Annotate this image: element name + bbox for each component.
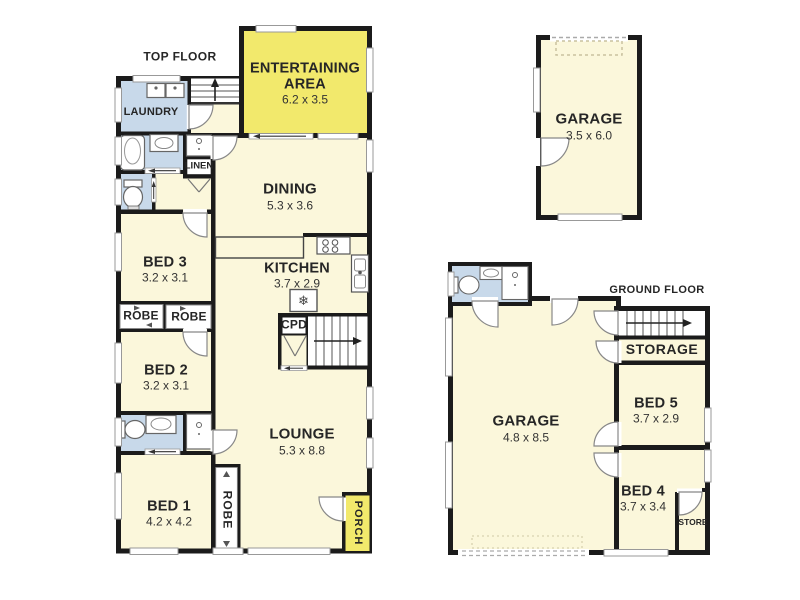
toilet-icon: [119, 421, 145, 439]
toilet-icon: [124, 180, 143, 210]
room-label-bed3: BED 3 3.2 x 3.1: [142, 255, 188, 286]
room-label-lounge: LOUNGE 5.3 x 8.8: [269, 426, 334, 457]
room-label-storage: STORAGE: [626, 342, 698, 358]
top-floor-title: TOP FLOOR: [143, 50, 216, 63]
kitchen-sink-icon: [352, 255, 369, 292]
room-label-entertaining: ENTERTAINING AREA 6.2 x 3.5: [244, 61, 366, 108]
room-label-bed4: BED 4 3.7 x 3.4: [620, 484, 666, 515]
vanity-sink-icon: [150, 135, 178, 152]
room-label-cpd: CPD: [281, 318, 307, 331]
floorplan-canvas: TOP FLOOR ENTERTAINING AREA 6.2 x 3.5 LA…: [0, 0, 800, 600]
stairs-up-icon: [191, 78, 239, 105]
room-label-bed2: BED 2 3.2 x 3.1: [143, 363, 189, 394]
room-dims: 6.2 x 3.5: [244, 94, 366, 107]
window: [534, 68, 541, 112]
fridge-snowflake-icon: ❄: [298, 293, 309, 309]
room-label-linen: LINEN: [185, 162, 214, 173]
room-label-robe-right: ROBE: [171, 310, 206, 323]
room-label-store: STORE: [678, 518, 707, 528]
room-label-dining: DINING 5.3 x 3.6: [263, 181, 317, 212]
toilet-icon: [453, 276, 480, 294]
room-label-kitchen: KITCHEN 3.7 x 2.9: [264, 261, 330, 292]
door-gap: [534, 138, 540, 166]
stairs-mid-icon: [308, 317, 368, 366]
room-label-bed5: BED 5 3.7 x 2.9: [633, 396, 679, 427]
room-label-detached-garage: GARAGE 3.5 x 6.0: [555, 111, 622, 142]
shower-icon: [502, 267, 528, 300]
shower-icon: [187, 414, 212, 449]
laundry-tubs-icon: [147, 84, 184, 98]
vanity-sink-icon: [480, 267, 502, 280]
room-label-robe-left: ROBE: [123, 309, 158, 322]
vanity-sink-icon: [146, 416, 176, 434]
window: [448, 272, 454, 296]
stairs-gf-icon: [619, 311, 705, 336]
room-name: ENTERTAINING AREA: [244, 61, 366, 93]
room-label-porch: PORCH: [352, 501, 364, 546]
window: [558, 214, 622, 221]
stove-icon: [317, 237, 350, 254]
floorplan-svg: [0, 0, 800, 600]
shower-icon: [187, 135, 212, 156]
bathtub-icon: [121, 136, 145, 171]
room-label-laundry: LAUNDRY: [124, 106, 179, 118]
room-label-gf-garage: GARAGE 4.8 x 8.5: [492, 413, 559, 444]
ground-floor-title: GROUND FLOOR: [609, 284, 704, 296]
room-label-bed1: BED 1 4.2 x 4.2: [146, 499, 192, 530]
room-label-robe-bed1: ROBE: [220, 491, 233, 530]
